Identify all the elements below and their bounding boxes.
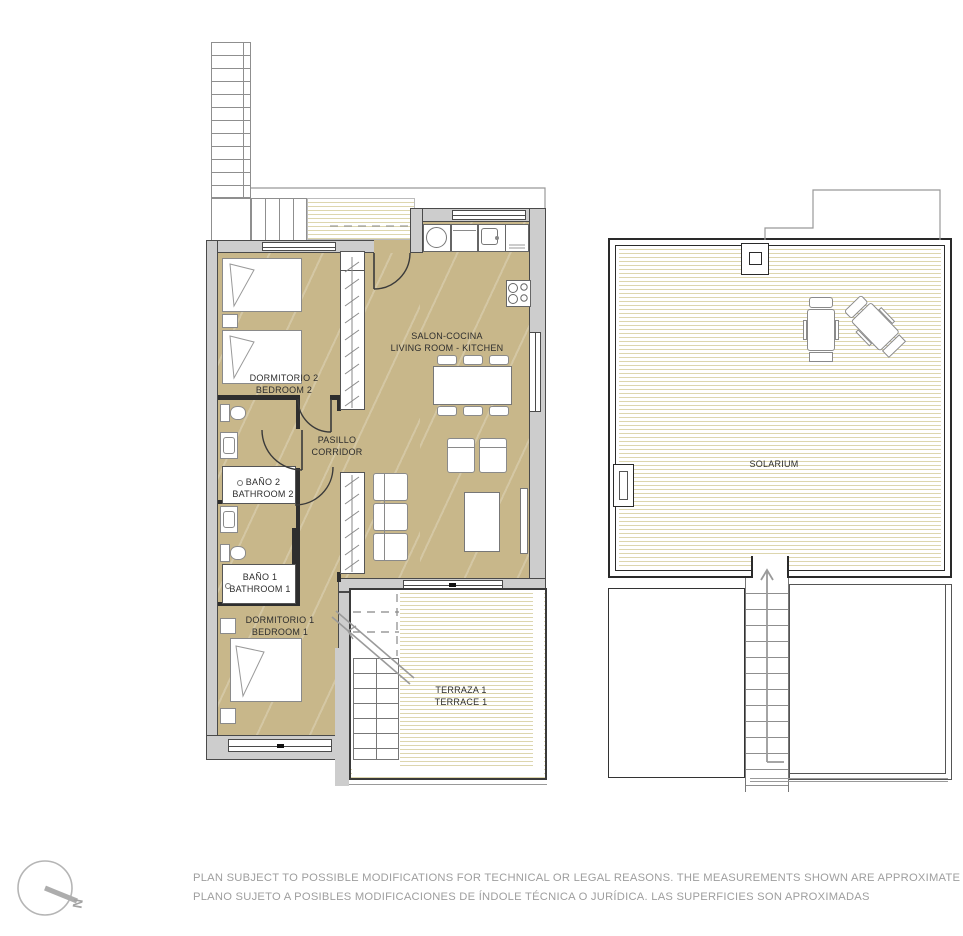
dining-table <box>433 366 512 405</box>
sofa-seat <box>373 473 408 501</box>
wardrobe-hall-shelf <box>341 270 364 271</box>
terrace-outline-offset <box>349 784 547 785</box>
label-bathroom1-es: BAÑO 1 <box>229 571 290 583</box>
dining-chair <box>463 406 483 416</box>
dining-chair <box>437 355 457 365</box>
bedroom1-nightstand-b <box>220 708 236 724</box>
sofa-seat <box>373 533 408 561</box>
roof-stair-arrival <box>751 556 789 580</box>
label-corridor-en: CORRIDOR <box>312 446 363 458</box>
bath2-basin-bowl <box>223 437 235 454</box>
solarium-side-gate-leaf <box>619 471 628 500</box>
access-stair-landing <box>211 198 251 242</box>
armchair-back-line <box>448 447 474 448</box>
window-bedroom1-tick <box>277 744 284 748</box>
solarium-parapet <box>608 238 952 578</box>
wall-entry-connector <box>410 208 423 253</box>
terrace-bottom-margin <box>352 768 544 777</box>
lounger-arm-right <box>835 320 839 340</box>
terrace-stair-grid <box>353 658 399 760</box>
wall-left <box>206 240 218 758</box>
disclaimer-text: PLAN SUBJECT TO POSSIBLE MODIFICATIONS F… <box>193 869 960 907</box>
window-bedroom2 <box>262 242 336 251</box>
bedroom1-nightstand-a <box>220 618 236 634</box>
roof-bottom-line-b <box>750 781 948 782</box>
coffee-table <box>464 492 500 552</box>
dining-chair <box>489 355 509 365</box>
roof-area-left <box>608 588 745 778</box>
terrace-right-margin <box>533 591 544 777</box>
dining-chair <box>437 406 457 416</box>
armchair <box>447 438 475 473</box>
solarium-chimney-flue <box>749 252 762 265</box>
terrace-side-wall <box>335 648 349 786</box>
compass-north-label: N <box>69 898 85 910</box>
lounger-body <box>807 309 835 351</box>
label-bedroom2-es: DORMITORIO 2 <box>250 372 319 384</box>
dining-chair <box>489 406 509 416</box>
label-bedroom1: DORMITORIO 1 BEDROOM 1 <box>246 614 315 638</box>
armchair <box>479 438 507 473</box>
roof-area-right-inner-line <box>790 585 946 774</box>
label-bathroom2-es: BAÑO 2 <box>232 476 293 488</box>
label-living-es: SALON-COCINA <box>391 330 504 342</box>
label-corridor: PASILLO CORRIDOR <box>312 434 363 458</box>
partition-corridor-west-upper <box>296 399 300 429</box>
roof-area-right <box>789 584 952 780</box>
label-bedroom2: DORMITORIO 2 BEDROOM 2 <box>250 372 319 396</box>
label-bathroom2: BAÑO 2 BATHROOM 2 <box>232 476 293 500</box>
bedroom1-door-leaf <box>292 528 297 566</box>
bedroom2-nightstand <box>222 314 238 328</box>
bath2-toilet-tank <box>220 404 230 422</box>
label-solarium: SOLARIUM <box>749 458 798 470</box>
wardrobe-corridor <box>340 472 365 574</box>
lounger-headrest <box>809 297 833 308</box>
roofline-roof-plan <box>765 190 940 240</box>
label-living-en: LIVING ROOM - KITCHEN <box>391 342 504 354</box>
label-bedroom1-es: DORMITORIO 1 <box>246 614 315 626</box>
label-terrace1: TERRAZA 1 TERRACE 1 <box>435 684 488 708</box>
kitchen-unit <box>451 224 478 252</box>
entry-door-opening <box>374 240 410 253</box>
label-bedroom2-en: BEDROOM 2 <box>250 384 319 396</box>
washing-machine-drum-icon <box>426 227 447 248</box>
label-bedroom1-en: BEDROOM 1 <box>246 626 315 638</box>
label-bathroom2-en: BATHROOM 2 <box>232 488 293 500</box>
label-terrace1-en: TERRACE 1 <box>435 696 488 708</box>
disclaimer-line-en: PLAN SUBJECT TO POSSIBLE MODIFICATIONS F… <box>193 869 960 888</box>
window-kitchen <box>452 210 526 220</box>
access-stair-flight <box>211 42 251 198</box>
roof-stair-flight <box>745 578 789 792</box>
solarium-floor <box>615 245 945 571</box>
sofa-back-line <box>384 474 385 560</box>
label-bathroom1-en: BATHROOM 1 <box>229 583 290 595</box>
roof-bottom-line-a <box>750 778 948 779</box>
dining-chair <box>463 355 483 365</box>
lounger-footrest <box>809 352 833 362</box>
entrance-porch <box>307 198 415 240</box>
access-walkway-steps <box>251 198 307 242</box>
access-stair-stringer <box>243 43 244 197</box>
label-solarium-es: SOLARIUM <box>749 458 798 470</box>
sofa-seat <box>373 503 408 531</box>
armchair-back-line <box>480 447 506 448</box>
label-living-kitchen: SALON-COCINA LIVING ROOM - KITCHEN <box>391 330 504 354</box>
label-corridor-es: PASILLO <box>312 434 363 446</box>
bed1-double <box>230 638 302 702</box>
floor-plan-canvas: DORMITORIO 2 BEDROOM 2 SALON-COCINA LIVI… <box>0 0 963 936</box>
slider-handle-tick <box>449 583 456 587</box>
sink-bowl <box>481 228 498 245</box>
bath1-toilet-bowl <box>230 546 246 560</box>
lounger-arm-left <box>803 320 807 340</box>
sun-lounger <box>804 296 840 364</box>
tv-unit <box>520 488 528 554</box>
label-bathroom1: BAÑO 1 BATHROOM 1 <box>229 571 290 595</box>
hob <box>506 280 531 307</box>
wardrobe-hall <box>340 251 365 410</box>
disclaimer-line-es: PLANO SUJETO A POSIBLES MODIFICACIONES D… <box>193 888 960 907</box>
kitchen-unit-line <box>453 230 476 231</box>
compass-circle-icon <box>18 861 72 915</box>
bath1-toilet-tank <box>220 544 230 562</box>
window-dining-right <box>529 332 541 412</box>
bed2-single-a <box>222 258 302 312</box>
bath1-basin-bowl <box>223 511 235 528</box>
bath2-toilet-bowl <box>230 406 246 420</box>
label-terrace1-es: TERRAZA 1 <box>435 684 488 696</box>
